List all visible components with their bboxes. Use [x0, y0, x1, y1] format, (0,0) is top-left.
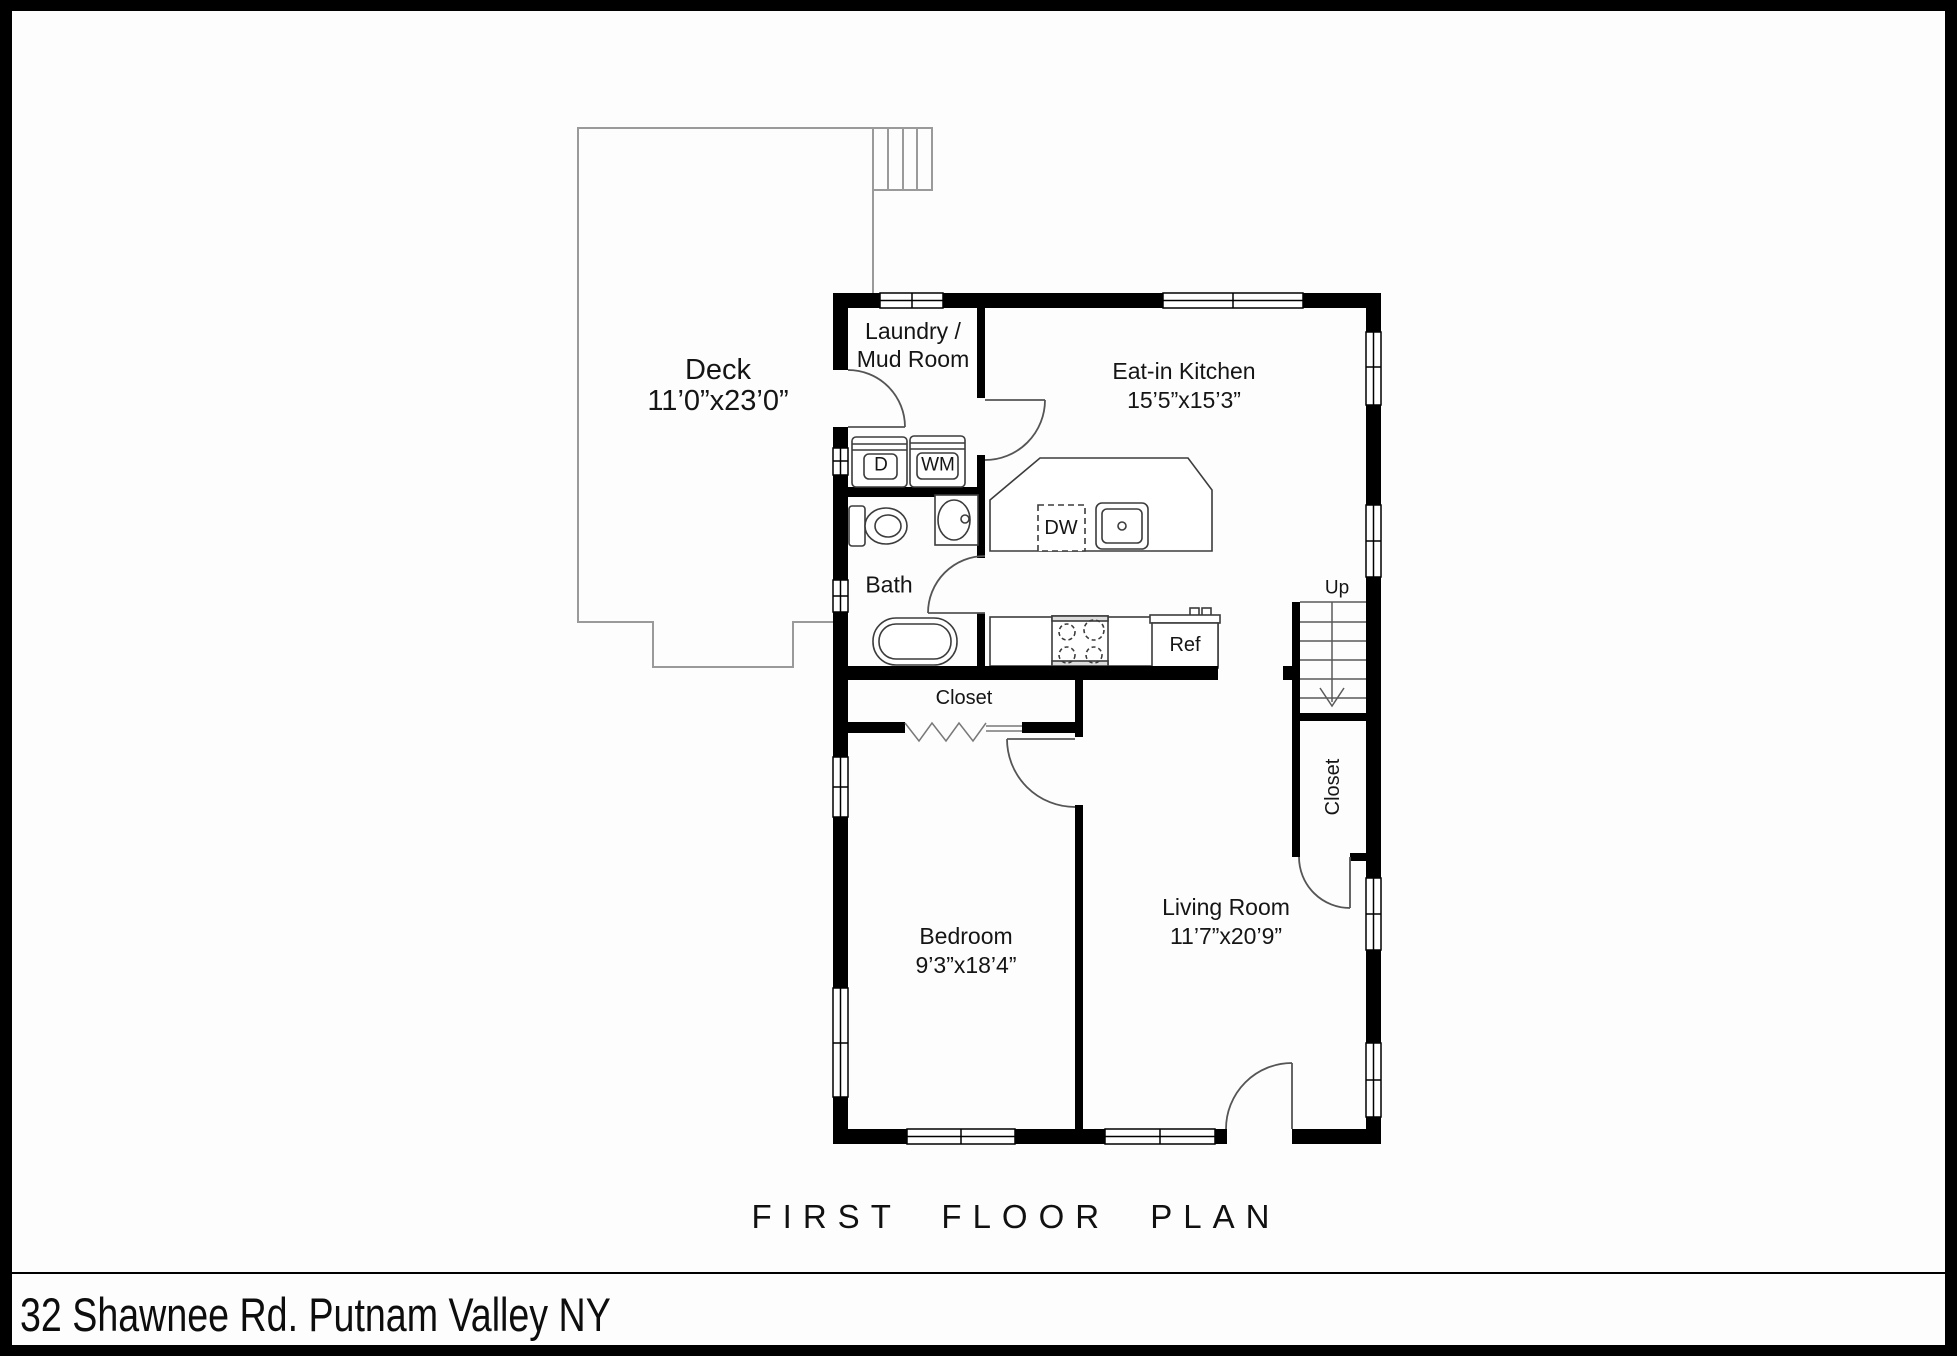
- living-room-name: Living Room: [1162, 894, 1290, 920]
- window: [833, 448, 848, 475]
- kitchen-sink: [1096, 503, 1148, 549]
- bedroom-label: Bedroom 9’3”x18’4”: [916, 922, 1017, 980]
- window: [880, 293, 943, 308]
- door-bath: [928, 556, 985, 613]
- plan-title: FIRST FLOOR PLAN: [752, 1198, 1281, 1236]
- laundry-label: Laundry / Mud Room: [857, 317, 969, 373]
- closet-bifold-door: [905, 723, 1022, 741]
- door-laundry-entry: [848, 370, 905, 427]
- staircase: [1300, 602, 1366, 706]
- window: [1105, 1129, 1215, 1144]
- stairs-up-label: Up: [1325, 578, 1349, 601]
- window: [907, 1129, 1015, 1144]
- door-laundry-kitchen: [985, 400, 1045, 460]
- stairs-closet-label: Closet: [1321, 759, 1345, 816]
- bath-sink: [935, 495, 978, 545]
- window: [833, 988, 848, 1097]
- address-text: 32 Shawnee Rd. Putnam Valley NY: [20, 1287, 611, 1342]
- dishwasher-label: DW: [1044, 516, 1077, 540]
- window: [833, 757, 848, 817]
- toilet: [849, 506, 907, 546]
- washer-label: WM: [921, 455, 955, 478]
- deck-label: Deck 11’0”x23’0”: [647, 355, 788, 417]
- refrigerator-label: Ref: [1169, 633, 1200, 657]
- floor-plan-drawing: [0, 0, 1957, 1356]
- bedroom-name: Bedroom: [919, 923, 1012, 949]
- bathtub: [873, 618, 957, 665]
- floor-plan-page: Deck 11’0”x23’0” Laundry / Mud Room Eat-…: [0, 0, 1957, 1356]
- bath-label: Bath: [865, 571, 912, 600]
- window: [1366, 878, 1381, 950]
- kitchen-label: Eat-in Kitchen 15’5”x15’3”: [1112, 357, 1255, 415]
- deck-name: Deck: [685, 354, 751, 386]
- door-front-entry: [1226, 1063, 1292, 1129]
- door-stairs-closet: [1299, 857, 1350, 908]
- interior-walls: [833, 308, 1366, 1129]
- kitchen-dims: 15’5”x15’3”: [1112, 386, 1255, 415]
- window: [833, 580, 848, 612]
- stove: [1052, 616, 1108, 666]
- window: [1163, 293, 1303, 308]
- window: [1366, 505, 1381, 577]
- bedroom-closet-label: Closet: [936, 686, 993, 710]
- living-room-label: Living Room 11’7”x20’9”: [1162, 893, 1290, 951]
- dryer-label: D: [874, 455, 888, 478]
- bedroom-dims: 9’3”x18’4”: [916, 951, 1017, 980]
- living-room-dims: 11’7”x20’9”: [1162, 922, 1290, 951]
- deck-dims: 11’0”x23’0”: [647, 386, 788, 417]
- window: [1366, 332, 1381, 405]
- door-bedroom: [1007, 739, 1075, 807]
- kitchen-name: Eat-in Kitchen: [1112, 358, 1255, 384]
- window: [1366, 1043, 1381, 1117]
